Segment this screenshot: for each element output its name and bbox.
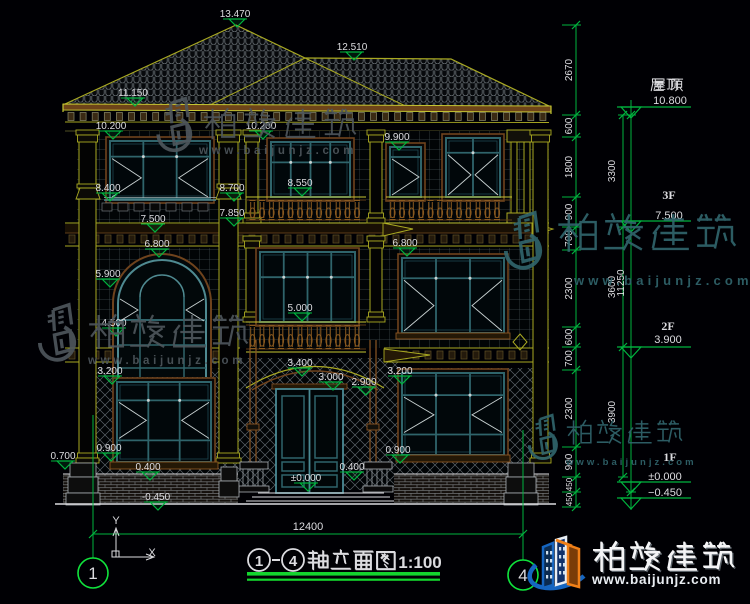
svg-text:450: 450: [565, 477, 574, 491]
svg-text:13.470: 13.470: [220, 9, 251, 20]
svg-text:3.200: 3.200: [97, 366, 122, 377]
svg-text:3.200: 3.200: [387, 366, 412, 377]
svg-text:6.800: 6.800: [144, 239, 169, 250]
svg-text:2.900: 2.900: [351, 377, 376, 388]
svg-text:3.000: 3.000: [318, 372, 343, 383]
svg-text:0.900: 0.900: [96, 443, 121, 454]
svg-text:2F: 2F: [661, 319, 674, 333]
svg-text:Y: Y: [112, 515, 120, 527]
svg-text:0.400: 0.400: [339, 462, 364, 473]
svg-text:www.baijunjz.com: www.baijunjz.com: [87, 355, 246, 367]
svg-text:9.900: 9.900: [384, 132, 409, 143]
svg-text:2300: 2300: [564, 397, 575, 420]
svg-text:5.900: 5.900: [95, 269, 120, 280]
svg-text:4: 4: [289, 553, 298, 570]
svg-text:6.800: 6.800: [392, 238, 417, 249]
svg-text:10.200: 10.200: [96, 121, 127, 132]
svg-text:X: X: [148, 547, 156, 559]
svg-text:5.000: 5.000: [287, 303, 312, 314]
svg-text:1: 1: [255, 553, 263, 570]
svg-text:1:100: 1:100: [398, 553, 441, 572]
svg-text:www.baijunjz.com: www.baijunjz.com: [198, 145, 357, 157]
svg-text:−0.450: −0.450: [648, 487, 682, 499]
svg-text:3300: 3300: [607, 159, 618, 182]
svg-text:3.400: 3.400: [287, 358, 312, 369]
svg-text:600: 600: [564, 328, 575, 345]
svg-text:www.baijunjz.com: www.baijunjz.com: [573, 273, 750, 288]
svg-text:8.550: 8.550: [287, 178, 312, 189]
svg-text:10.800: 10.800: [653, 95, 687, 107]
svg-text:3900: 3900: [607, 400, 618, 423]
svg-text:12400: 12400: [293, 521, 324, 533]
svg-text:3.900: 3.900: [654, 334, 682, 346]
svg-text:www.baijunjz.com: www.baijunjz.com: [591, 572, 721, 587]
svg-text:10.200: 10.200: [246, 121, 277, 132]
svg-text:3F: 3F: [662, 188, 675, 202]
svg-text:0.700: 0.700: [50, 451, 75, 462]
svg-text:4: 4: [518, 566, 527, 585]
svg-text:1800: 1800: [564, 155, 575, 178]
svg-text:0.400: 0.400: [135, 462, 160, 473]
svg-text:±0.000: ±0.000: [291, 473, 322, 484]
svg-text:-0.450: -0.450: [142, 492, 171, 503]
svg-text:8.700: 8.700: [219, 183, 244, 194]
svg-text:1: 1: [88, 564, 97, 583]
svg-text:www.baijunjz.com: www.baijunjz.com: [565, 457, 697, 468]
svg-text:0.900: 0.900: [385, 445, 410, 456]
svg-text:8.400: 8.400: [95, 183, 120, 194]
svg-text:±0.000: ±0.000: [648, 471, 682, 483]
svg-text:7.500: 7.500: [140, 214, 165, 225]
svg-text:7.850: 7.850: [219, 208, 244, 219]
svg-text:450: 450: [565, 492, 574, 506]
svg-text:12.510: 12.510: [337, 42, 368, 53]
svg-text:11.150: 11.150: [118, 88, 148, 99]
svg-text:600: 600: [564, 117, 575, 134]
svg-text:700: 700: [564, 350, 575, 367]
svg-text:2670: 2670: [564, 58, 575, 81]
